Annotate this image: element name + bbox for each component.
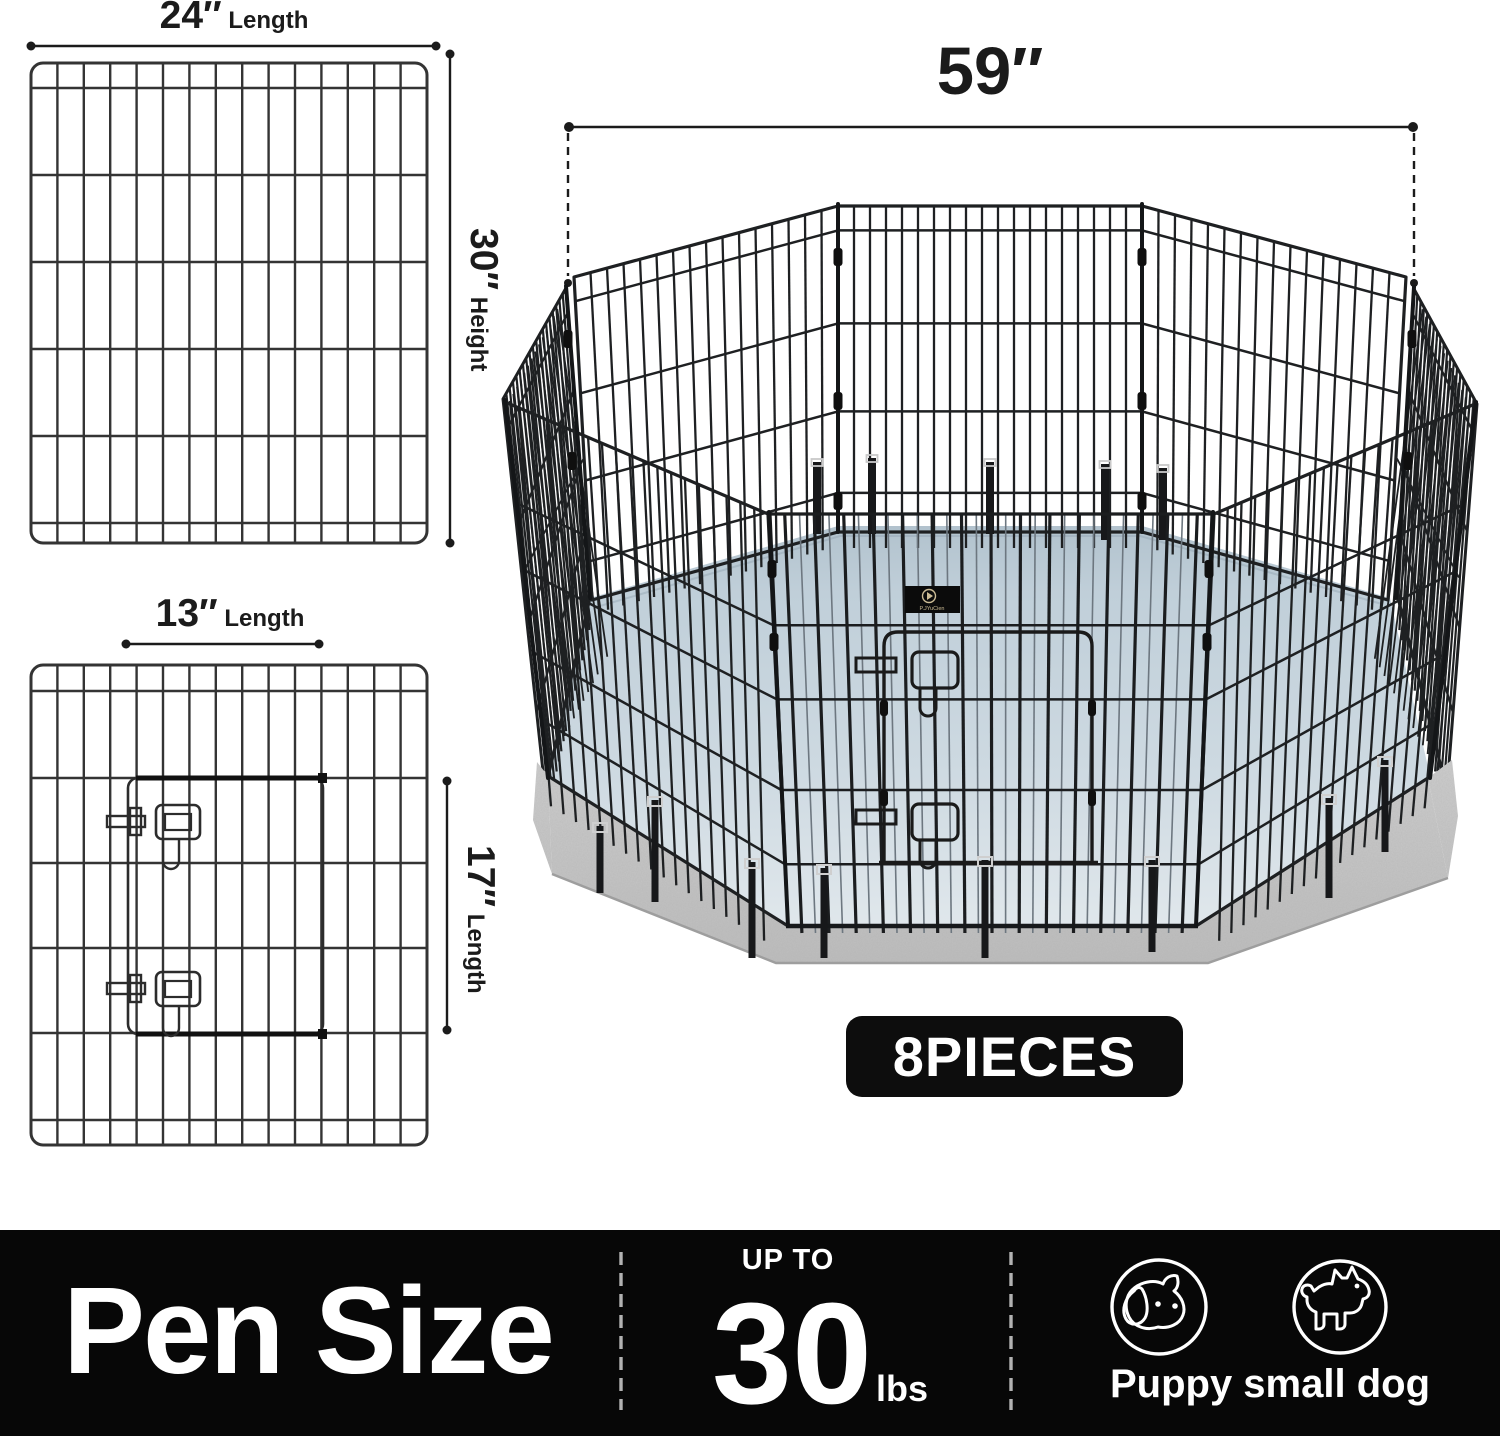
svg-text:P.JYuCien: P.JYuCien <box>920 606 945 612</box>
